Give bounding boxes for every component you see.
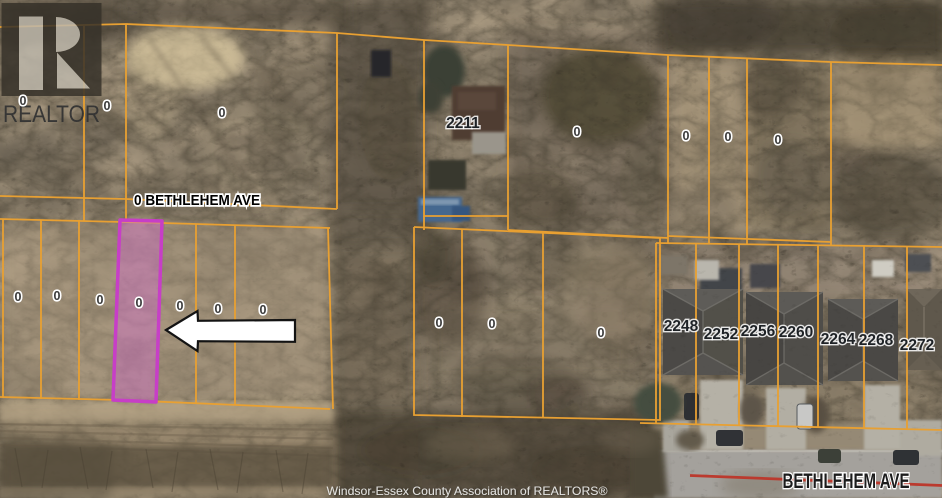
- svg-text:0: 0: [54, 289, 61, 303]
- svg-text:0: 0: [775, 133, 782, 147]
- svg-text:0: 0: [177, 299, 184, 313]
- svg-text:0: 0: [436, 316, 443, 330]
- svg-text:Windsor-Essex County Associati: Windsor-Essex County Association of REAL…: [327, 484, 608, 498]
- svg-text:2211: 2211: [446, 115, 480, 132]
- svg-text:BETHLEHEM AVE: BETHLEHEM AVE: [783, 470, 910, 493]
- svg-text:2252: 2252: [704, 326, 738, 343]
- svg-text:0: 0: [725, 130, 732, 144]
- svg-text:0: 0: [574, 125, 581, 139]
- svg-text:0: 0: [20, 94, 27, 108]
- svg-text:0: 0: [136, 296, 143, 310]
- svg-text:0: 0: [598, 326, 605, 340]
- svg-text:0: 0: [215, 302, 222, 316]
- svg-text:2268: 2268: [859, 332, 894, 349]
- svg-text:0: 0: [97, 293, 104, 307]
- svg-text:2256: 2256: [741, 323, 776, 340]
- svg-text:2264: 2264: [821, 331, 856, 348]
- svg-text:2248: 2248: [664, 318, 699, 335]
- svg-text:2260: 2260: [779, 324, 813, 341]
- svg-text:0: 0: [104, 99, 111, 113]
- svg-text:0: 0: [683, 129, 690, 143]
- svg-text:2272: 2272: [900, 337, 934, 354]
- svg-text:REALTOR: REALTOR: [3, 101, 100, 128]
- svg-text:0: 0: [260, 303, 267, 317]
- svg-text:0: 0: [219, 106, 226, 120]
- svg-text:0 BETHLEHEM AVE: 0 BETHLEHEM AVE: [134, 192, 260, 209]
- svg-text:0: 0: [489, 317, 496, 331]
- svg-text:0: 0: [15, 290, 22, 304]
